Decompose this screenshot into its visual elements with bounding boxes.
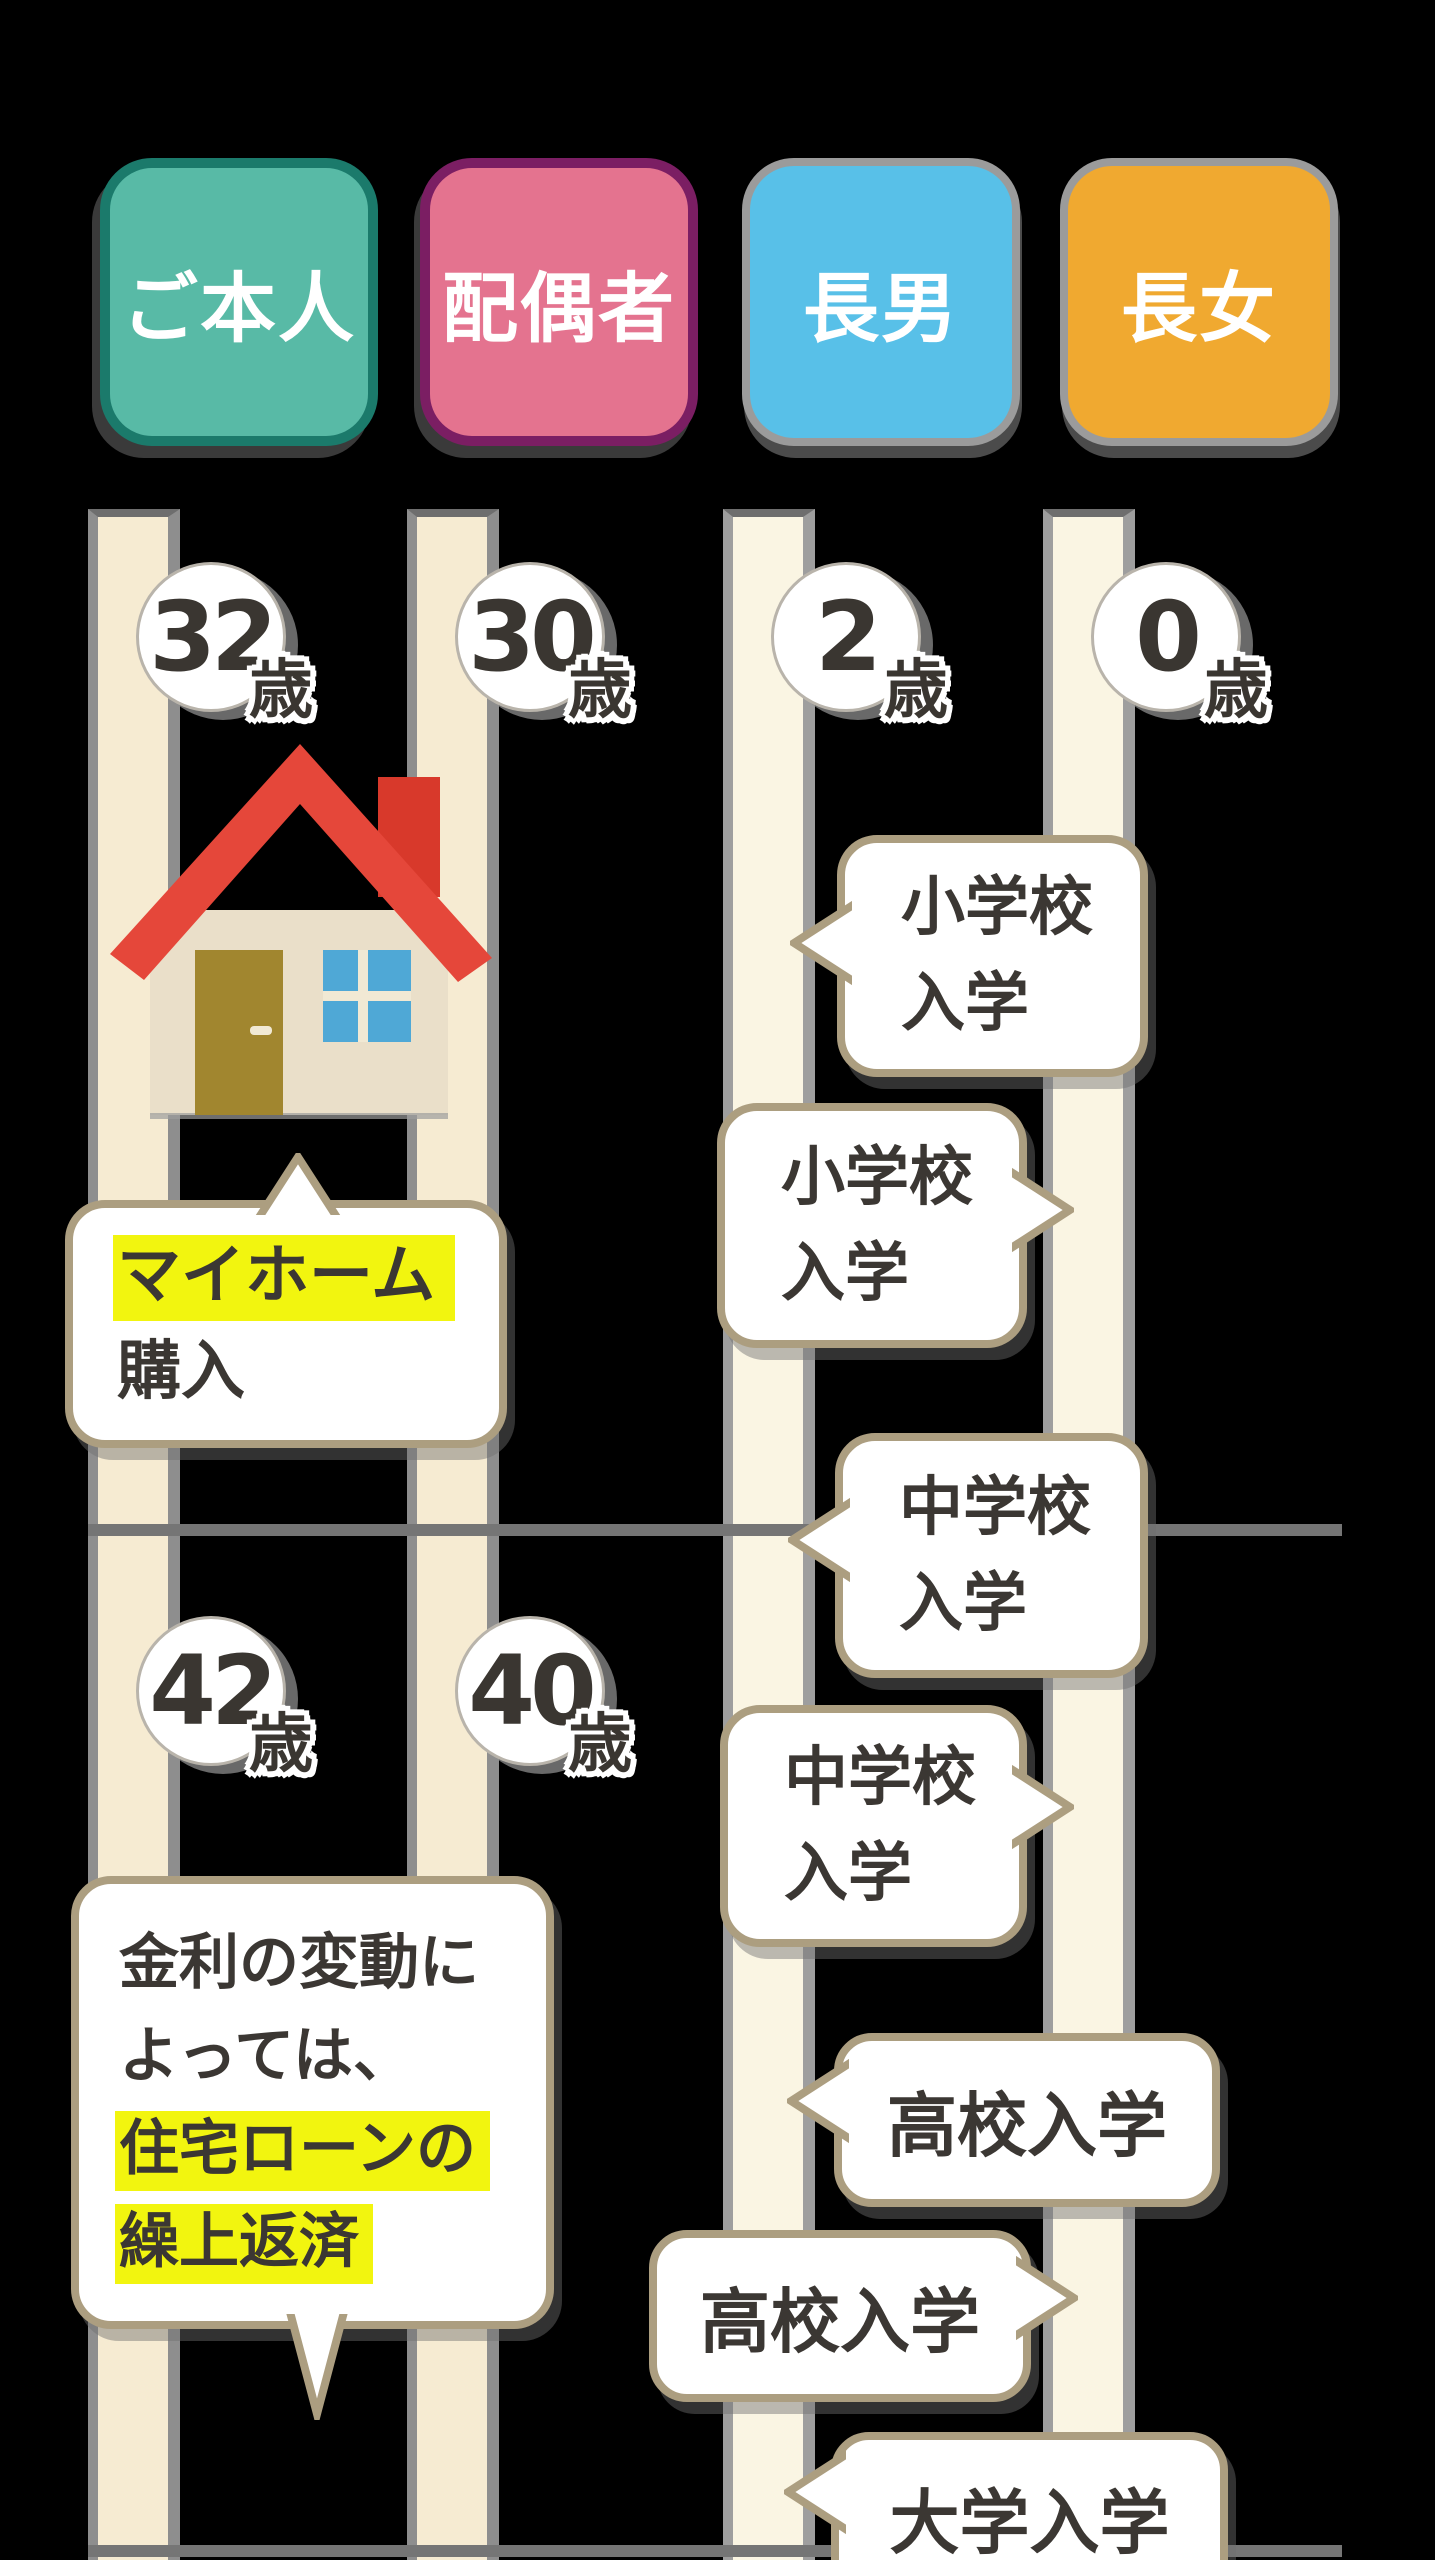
legend-label-self: ご本人: [122, 247, 356, 357]
event-text: 高校入学: [700, 2281, 980, 2363]
age-marker-spouse-30: 30 歳: [455, 562, 605, 712]
legend-label-eldest-son: 長男: [803, 247, 959, 357]
age-value: 2: [815, 589, 877, 685]
age-marker-self-32: 32 歳: [136, 562, 286, 712]
bubble-pointer-left-icon: [787, 2057, 849, 2145]
event-text: 入学: [781, 1237, 909, 1311]
age-unit: 歳: [249, 639, 313, 731]
age-unit: 歳: [1204, 639, 1268, 731]
event-text-highlight: マイホーム: [113, 1235, 455, 1321]
age-value: 0: [1135, 589, 1197, 685]
event-text: 高校入学: [887, 2085, 1167, 2167]
event-text: 大学入学: [890, 2482, 1170, 2560]
age-unit: 歳: [884, 639, 948, 731]
event-text: 中学校: [784, 1741, 976, 1815]
bubble-pointer-left-icon: [788, 1496, 850, 1584]
legend-label-eldest-daughter: 長女: [1121, 247, 1277, 357]
decade-divider-line: [88, 1524, 1342, 1536]
event-bubble-loan-note: 金利の変動に よっては、 住宅ローンの 繰上返済: [71, 1876, 554, 2329]
event-text: 入学: [899, 1567, 1027, 1641]
event-bubble-juniorhigh-daughter: 中学校 入学: [720, 1705, 1027, 1947]
event-text: 入学: [784, 1837, 912, 1911]
event-text-highlight: 繰上返済: [115, 2204, 373, 2284]
legend-badge-self: ご本人: [100, 158, 378, 446]
age-unit: 歳: [568, 1693, 632, 1785]
event-bubble-juniorhigh-son: 中学校 入学: [835, 1433, 1148, 1678]
age-marker-self-42: 42 歳: [136, 1616, 286, 1766]
event-text: 金利の変動に: [119, 1928, 479, 1998]
event-text-highlight: 住宅ローンの: [115, 2111, 490, 2191]
event-bubble-elementary-daughter: 小学校 入学: [717, 1103, 1027, 1348]
event-bubble-university-son: 大学入学: [831, 2432, 1228, 2560]
bubble-pointer-left-icon: [784, 2448, 846, 2536]
bubble-pointer-right-icon: [1012, 1763, 1074, 1851]
age-marker-son-2: 2 歳: [771, 562, 921, 712]
bubble-pointer-right-icon: [1016, 2254, 1078, 2342]
bubble-pointer-right-icon: [1012, 1166, 1074, 1254]
event-text: 購入: [117, 1335, 245, 1409]
age-marker-spouse-40: 40 歳: [455, 1616, 605, 1766]
age-unit: 歳: [568, 639, 632, 731]
legend-badge-spouse: 配偶者: [420, 158, 698, 446]
event-bubble-highschool-son: 高校入学: [834, 2033, 1220, 2207]
life-plan-timeline-diagram: ご本人 配偶者 長男 長女 32 歳 30 歳 2 歳 0: [0, 0, 1435, 2560]
event-bubble-myhome-purchase: マイホーム 購入: [65, 1200, 507, 1448]
legend-badge-eldest-son: 長男: [742, 158, 1020, 446]
event-text: 中学校: [899, 1471, 1091, 1545]
event-text: 入学: [901, 967, 1029, 1041]
event-text: 小学校: [901, 871, 1093, 945]
age-unit: 歳: [249, 1693, 313, 1785]
event-bubble-elementary-son: 小学校 入学: [837, 835, 1148, 1077]
event-bubble-highschool-daughter: 高校入学: [649, 2230, 1031, 2402]
legend-label-spouse: 配偶者: [442, 247, 676, 357]
event-text: よっては、: [119, 2021, 413, 2091]
age-marker-daughter-0: 0 歳: [1091, 562, 1241, 712]
house-icon: [100, 740, 500, 1120]
legend-badge-eldest-daughter: 長女: [1060, 158, 1338, 446]
bubble-pointer-up-icon: [254, 1153, 342, 1215]
bubble-pointer-down-icon: [277, 2314, 357, 2420]
event-text: 小学校: [781, 1141, 973, 1215]
bubble-pointer-left-icon: [790, 899, 852, 987]
